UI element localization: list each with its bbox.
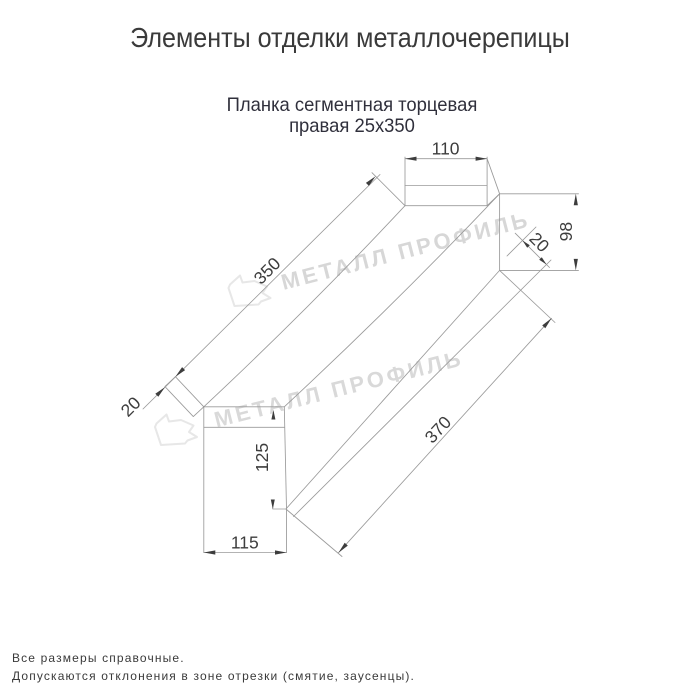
svg-text:115: 115 — [231, 533, 259, 553]
svg-text:20: 20 — [117, 393, 145, 421]
svg-text:125: 125 — [252, 443, 272, 472]
svg-text:110: 110 — [432, 139, 460, 159]
svg-text:20: 20 — [525, 228, 553, 256]
svg-text:98: 98 — [556, 222, 576, 241]
svg-text:МЕТАЛЛ ПРОФИЛЬ: МЕТАЛЛ ПРОФИЛЬ — [212, 345, 466, 432]
svg-text:350: 350 — [250, 253, 285, 288]
svg-text:МЕТАЛЛ ПРОФИЛЬ: МЕТАЛЛ ПРОФИЛЬ — [278, 207, 532, 295]
svg-text:370: 370 — [421, 412, 456, 447]
